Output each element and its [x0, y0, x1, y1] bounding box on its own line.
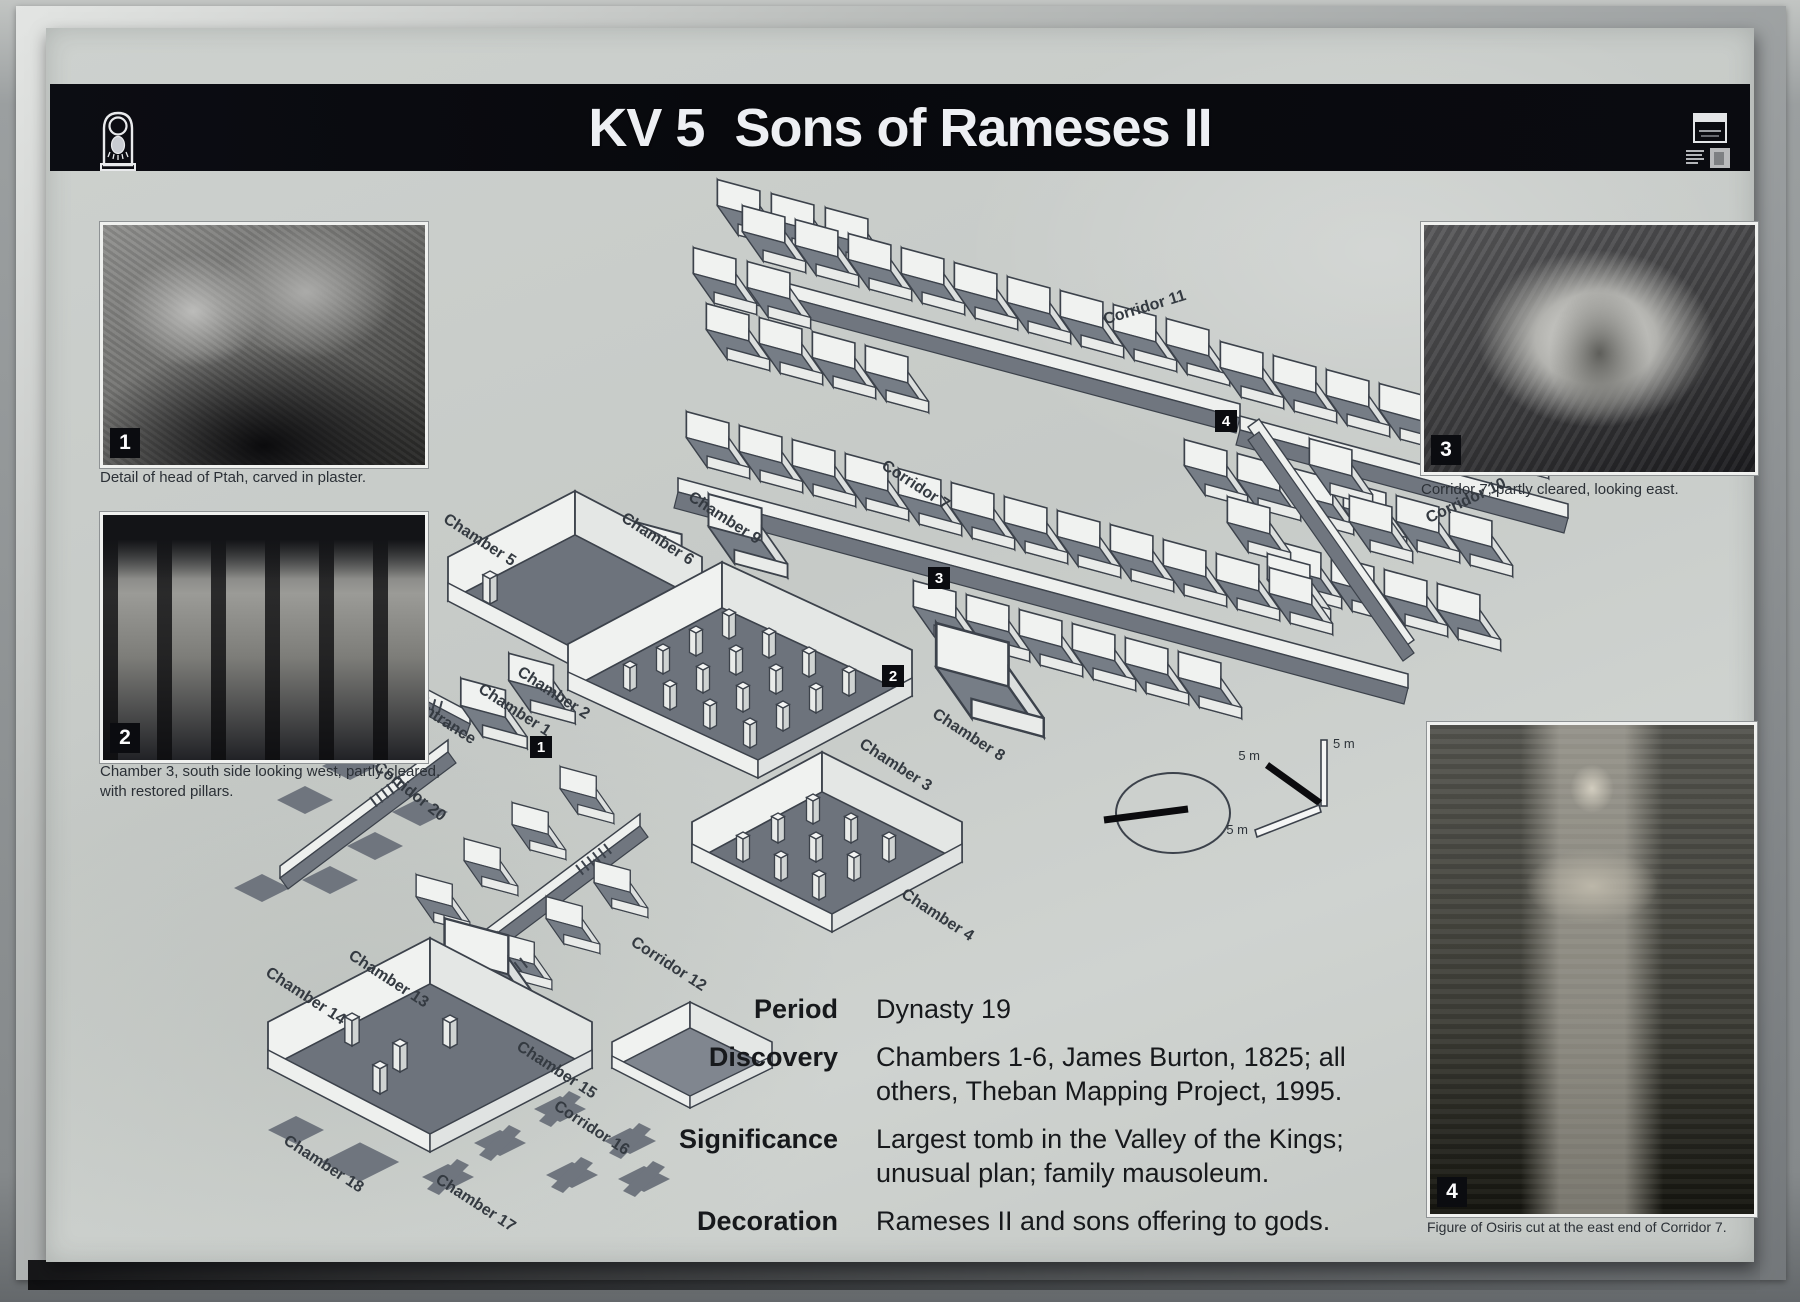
photo-1-number-badge: 1 — [110, 428, 140, 458]
info-value-discovery: Chambers 1-6, James Burton, 1825; all ot… — [876, 1040, 1380, 1108]
frame-bottom-shadow — [28, 1260, 1760, 1290]
page-title: KV 5 Sons of Rameses II — [588, 97, 1211, 159]
photo-3: 3 — [1421, 222, 1758, 475]
photo-4-number-badge: 4 — [1437, 1177, 1467, 1207]
cartouche-logo-icon — [98, 108, 138, 172]
photo-3-number-badge: 3 — [1431, 435, 1461, 465]
info-label-significance: Significance — [640, 1122, 838, 1190]
info-label-period: Period — [640, 992, 838, 1026]
photo-4: 4 — [1427, 722, 1757, 1217]
photo-2-caption: Chamber 3, south side looking west, part… — [100, 762, 445, 801]
info-value-significance: Largest tomb in the Valley of the Kings;… — [876, 1122, 1380, 1190]
info-value-period: Dynasty 19 — [876, 992, 1380, 1026]
photo-1: 1 — [100, 222, 428, 468]
photo-4-caption: Figure of Osiris cut at the east end of … — [1427, 1218, 1777, 1236]
header-bar: KV 5 Sons of Rameses II — [50, 84, 1750, 171]
tomb-name: Sons of Rameses II — [734, 97, 1211, 159]
tomb-catalog-number: KV 5 — [588, 97, 704, 159]
photo-2-image — [103, 515, 425, 760]
photo-1-caption: Detail of head of Ptah, carved in plaste… — [100, 468, 430, 488]
tomb-info-block: Period Dynasty 19 Discovery Chambers 1-6… — [640, 992, 1380, 1238]
kv5-information-panel: KV 5 Sons of Rameses II — [0, 0, 1800, 1302]
info-label-discovery: Discovery — [640, 1040, 838, 1108]
info-label-decoration: Decoration — [640, 1204, 838, 1238]
photo-3-caption: Corridor 7, partly cleared, looking east… — [1421, 480, 1761, 500]
photo-1-image — [103, 225, 425, 465]
photo-2-number-badge: 2 — [110, 723, 140, 753]
info-value-decoration: Rameses II and sons offering to gods. — [876, 1204, 1380, 1238]
photo-4-image — [1430, 725, 1754, 1214]
antiquities-logo-icon — [1682, 110, 1742, 172]
photo-2: 2 — [100, 512, 428, 763]
photo-3-image — [1424, 225, 1755, 472]
